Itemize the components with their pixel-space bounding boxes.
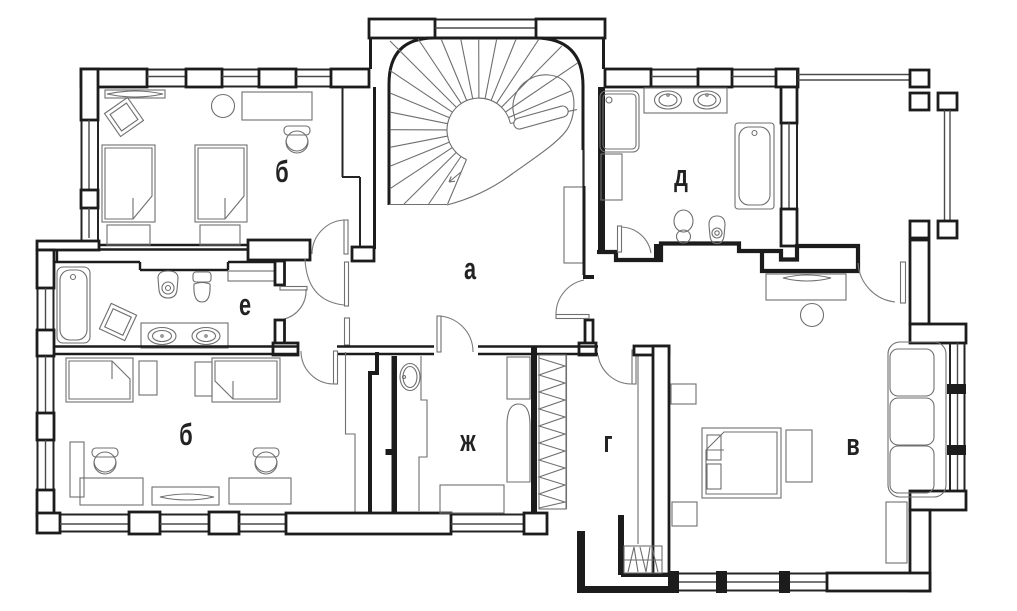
svg-text:б: б <box>275 154 288 189</box>
svg-text:ж: ж <box>459 423 476 458</box>
svg-text:г: г <box>603 424 612 459</box>
svg-text:е: е <box>239 287 251 322</box>
svg-text:а: а <box>464 251 477 286</box>
svg-text:в: в <box>846 427 859 462</box>
svg-text:д: д <box>674 158 688 193</box>
svg-text:б: б <box>179 417 192 452</box>
